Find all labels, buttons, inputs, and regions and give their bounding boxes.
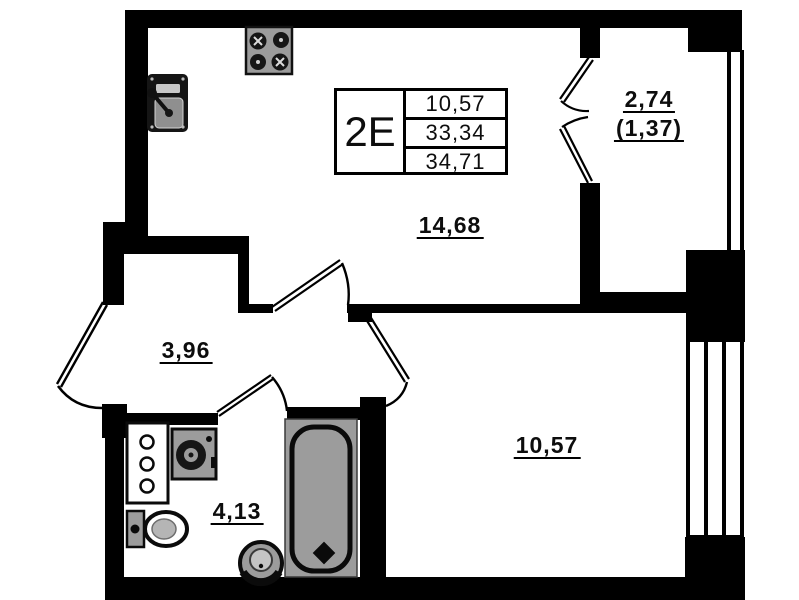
balcony-area-coefficient-label: (1,37): [614, 116, 684, 142]
bathtub-icon: [285, 419, 357, 577]
wall-top-right-block: [688, 10, 742, 52]
kitchen-door-icon: [272, 260, 349, 311]
unit-area-living: 10,57: [406, 91, 505, 120]
bathroom-door-icon: [217, 375, 287, 416]
wall-bathroom-bedroom: [360, 397, 386, 600]
bathroom-area-label: 4,13: [211, 499, 264, 525]
stove-icon: [246, 27, 292, 74]
wall-balcony-left-lower: [580, 183, 600, 295]
entrance-door-icon: [57, 302, 107, 408]
bedroom-area-label: 10,57: [514, 433, 581, 459]
wall-kitchen-bottom-right: [347, 304, 580, 313]
bedroom-window-icon: [686, 338, 744, 341]
wall-hall-right: [238, 236, 249, 306]
wall-balcony-left-upper: [580, 10, 600, 58]
balcony-area-label: 2,74: [623, 87, 676, 113]
wall-balcony-corner: [580, 293, 600, 313]
kitchen-sink-icon: [147, 74, 188, 132]
balcony-window-icon: [727, 50, 731, 252]
wall-top: [125, 10, 742, 28]
floor-plan: 2Е 10,57 33,34 34,71 14,68 2,74 (1,37) 3…: [0, 0, 799, 600]
unit-area-total: 33,34: [406, 120, 505, 149]
balcony-area-labels: 2,74 (1,37): [614, 87, 684, 142]
wall-hall-top: [103, 236, 249, 254]
wall-kitchen-bottom-left: [238, 304, 273, 313]
wall-bottom: [105, 577, 745, 600]
shelf-cabinet-icon: [127, 423, 168, 503]
wall-mid-right-block: [686, 250, 745, 342]
bedroom-window-icon: [686, 340, 690, 538]
balcony-window-icon: [740, 50, 744, 252]
unit-type-label: 2Е: [337, 91, 406, 172]
washing-machine-icon: [172, 429, 216, 479]
wall-kitchen-left: [125, 10, 148, 254]
wall-bathroom-top-right: [287, 407, 363, 420]
bedroom-door-icon: [364, 313, 409, 406]
unit-areas: 10,57 33,34 34,71: [406, 91, 505, 172]
wall-below-balcony: [598, 292, 686, 313]
bedroom-window-icon: [704, 340, 708, 538]
bedroom-window-icon: [686, 535, 744, 538]
bedroom-window-icon: [740, 340, 744, 538]
bedroom-window-icon: [722, 340, 726, 538]
hallway-area-label: 3,96: [160, 338, 213, 364]
pedestal-sink-icon: [240, 542, 282, 584]
kitchen-living-area-label: 14,68: [417, 213, 484, 239]
unit-area-overall: 34,71: [406, 149, 505, 175]
toilet-icon: [127, 511, 187, 547]
wall-left-outer: [103, 236, 124, 305]
balcony-french-door-icon: [560, 57, 593, 183]
unit-info-table: 2Е 10,57 33,34 34,71: [334, 88, 508, 175]
